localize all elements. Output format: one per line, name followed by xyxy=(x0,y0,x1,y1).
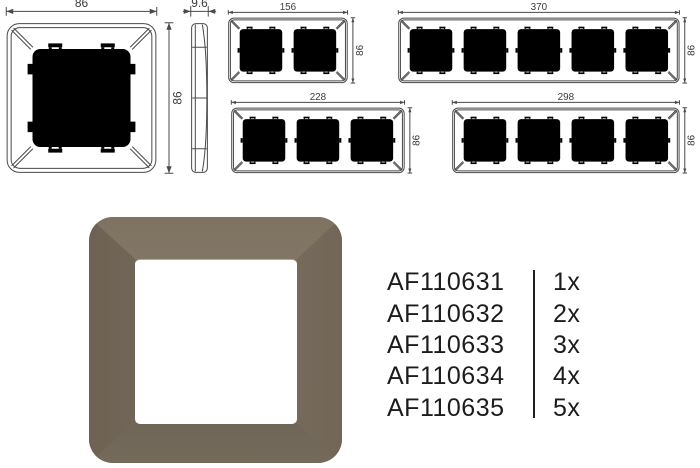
product-row: AF110631 1x xyxy=(387,267,580,298)
drawing-2gang: 156 86 xyxy=(226,1,364,86)
product-code: AF110632 xyxy=(387,300,553,329)
product-code: AF110631 xyxy=(387,268,553,297)
product-quantity: 3x xyxy=(553,331,580,360)
product-code: AF110635 xyxy=(387,394,553,423)
dim-label-5gang-width: 370 xyxy=(531,2,548,13)
dim-label-1gang-width: 86 xyxy=(75,0,89,10)
product-photo-frame xyxy=(89,217,342,463)
product-quantity: 5x xyxy=(553,394,580,423)
product-quantity: 1x xyxy=(553,268,580,297)
product-row: AF110634 4x xyxy=(387,361,580,392)
dim-label-2gang-height: 86 xyxy=(355,44,365,55)
drawing-side-profile: 9.6 xyxy=(182,0,226,177)
dim-label-2gang-width: 156 xyxy=(280,2,297,13)
list-divider-line xyxy=(533,270,535,418)
product-list: AF110631 1x AF110632 2x AF110633 3x AF11… xyxy=(387,267,580,424)
product-code: AF110634 xyxy=(387,362,553,391)
product-sheet: 86 86 9.6 xyxy=(0,0,700,468)
product-quantity: 2x xyxy=(553,300,580,329)
dim-label-3gang-height: 86 xyxy=(412,134,422,145)
dim-label-3gang-width: 228 xyxy=(310,92,327,103)
drawing-1gang-front: 86 86 xyxy=(1,0,185,177)
product-row: AF110633 3x xyxy=(387,330,580,361)
drawing-5gang: 370 86 xyxy=(396,1,696,86)
product-code: AF110633 xyxy=(387,331,553,360)
dim-label-5gang-height: 86 xyxy=(687,44,697,55)
product-row: AF110635 5x xyxy=(387,393,580,424)
drawing-3gang: 228 86 xyxy=(229,91,421,176)
product-quantity: 4x xyxy=(553,362,580,391)
dim-label-4gang-width: 298 xyxy=(558,92,575,103)
dim-label-4gang-height: 86 xyxy=(687,134,697,145)
product-row: AF110632 2x xyxy=(387,298,580,329)
drawing-4gang: 298 86 xyxy=(450,91,696,176)
frame-window-opening xyxy=(135,259,297,424)
dim-label-thickness: 9.6 xyxy=(191,0,208,10)
